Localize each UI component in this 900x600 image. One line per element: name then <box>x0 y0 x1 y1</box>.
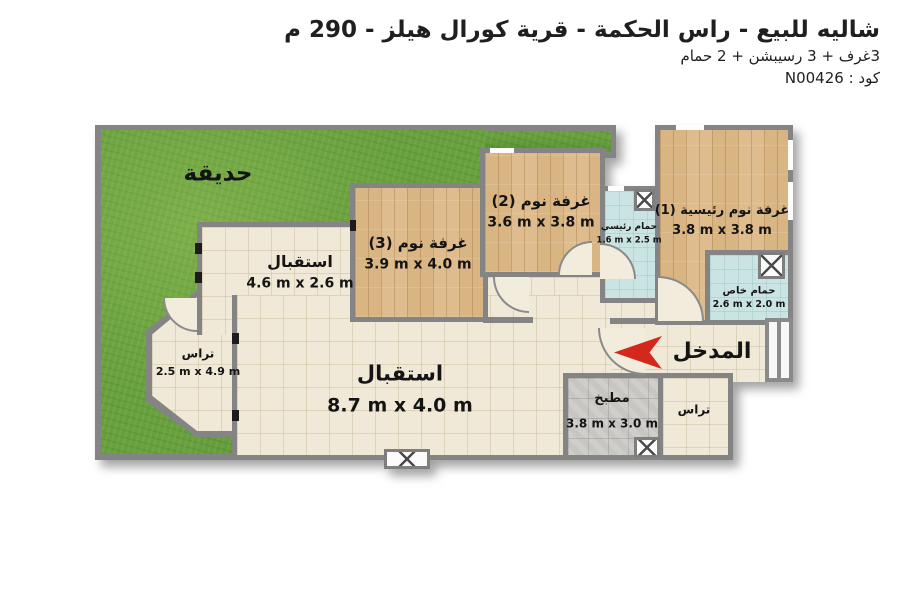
listing-header: شاليه للبيع - راس الحكمة - قرية كورال هي… <box>284 16 880 89</box>
label-reception-small: استقبال <box>267 253 333 271</box>
fixture-x-icon <box>758 252 785 279</box>
label-terrace-left-dims: 2.5 m x 4.9 m <box>156 366 240 378</box>
window-tick-icon <box>232 410 239 421</box>
room-bedroom-3 <box>350 183 488 322</box>
window-icon <box>676 125 704 130</box>
label-bathroom-private: حمام خاص <box>723 286 776 297</box>
window-icon <box>788 140 793 170</box>
label-bedroom-2-dims: 3.6 m x 3.8 m <box>487 215 594 230</box>
stairs-icon <box>765 318 793 382</box>
label-reception-main-dims: 8.7 m x 4.0 m <box>327 396 473 417</box>
label-bedroom-3: غرفة نوم (3) <box>368 235 467 252</box>
listing-subtitle: 3غرف + 3 رسيبشن + 2 حمام <box>284 46 880 68</box>
wall-segment <box>483 317 533 323</box>
label-bedroom-2: غرفة نوم (2) <box>491 193 590 210</box>
label-master-bedroom-dims: 3.8 m x 3.8 m <box>672 224 772 238</box>
window-tick-icon <box>232 333 239 344</box>
label-terrace-left: تراس <box>182 347 215 360</box>
label-bathroom-main: حمام رئيسي <box>601 223 657 233</box>
label-master-bedroom: غرفة نوم رئيسية (1) <box>655 204 790 218</box>
label-terrace-right: تراس <box>678 403 711 416</box>
room-master-bedroom <box>655 125 793 262</box>
window-icon <box>608 186 624 191</box>
wall-segment <box>610 318 660 324</box>
label-kitchen: مطبخ <box>594 392 629 406</box>
label-garden: حديقة <box>184 161 253 186</box>
window-icon <box>490 148 514 153</box>
label-bathroom-private-dims: 2.6 m x 2.0 m <box>713 300 786 310</box>
label-reception-main: استقبال <box>357 362 443 385</box>
label-bedroom-3-dims: 3.9 m x 4.0 m <box>364 257 471 272</box>
window-x-icon <box>384 449 430 469</box>
listing-code: كود : N00426 <box>284 68 880 90</box>
floor-plan: حديقة استقبال 4.6 m x 2.6 m غرفة نوم (3)… <box>0 0 900 600</box>
label-reception-small-dims: 4.6 m x 2.6 m <box>246 276 353 291</box>
label-bathroom-main-dims: 1.6 m x 2.5 m <box>596 236 661 245</box>
label-kitchen-dims: 3.8 m x 3.0 m <box>566 417 658 430</box>
label-entrance: المدخل <box>673 340 752 364</box>
fixture-x-icon <box>634 189 655 211</box>
listing-title: شاليه للبيع - راس الحكمة - قرية كورال هي… <box>284 16 880 46</box>
window-tick-icon <box>350 220 356 231</box>
window-tick-icon <box>195 243 202 254</box>
fixture-x-icon <box>634 437 660 458</box>
window-tick-icon <box>195 272 202 283</box>
